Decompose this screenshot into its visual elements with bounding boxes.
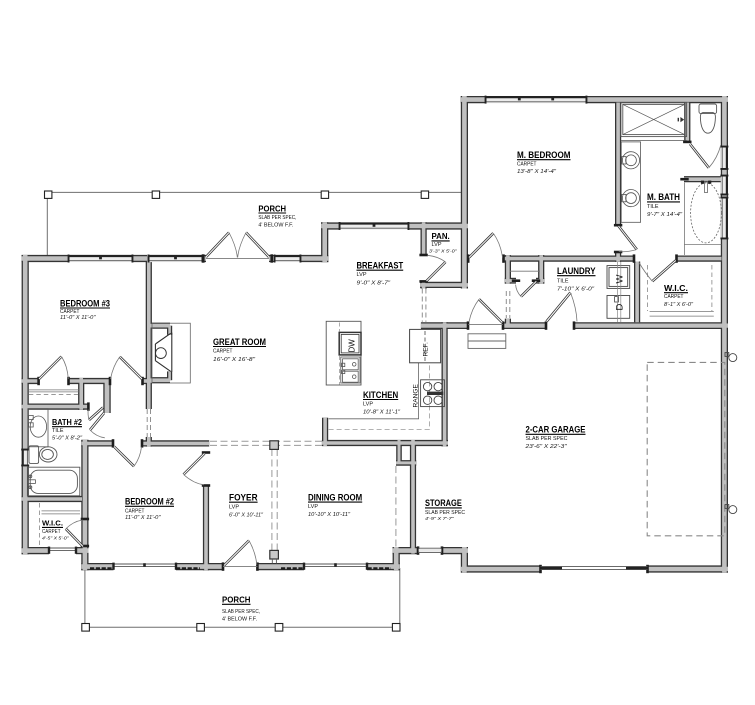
svg-text:LVP: LVP	[363, 402, 373, 408]
svg-text:M. BATH: M. BATH	[647, 192, 680, 202]
svg-text:STORAGE: STORAGE	[425, 498, 462, 508]
svg-text:FOYER: FOYER	[229, 493, 258, 503]
svg-text:M. BEDROOM: M. BEDROOM	[517, 150, 571, 160]
svg-text:TILE: TILE	[557, 279, 569, 285]
svg-text:CARPET: CARPET	[42, 529, 61, 535]
svg-text:BEDROOM #3: BEDROOM #3	[60, 298, 110, 308]
svg-text:TILE: TILE	[52, 428, 64, 434]
svg-text:4'-9" X 7'-7": 4'-9" X 7'-7"	[425, 516, 454, 522]
svg-text:DINING ROOM: DINING ROOM	[308, 492, 362, 502]
svg-text:SLAB PER SPEC,: SLAB PER SPEC,	[222, 609, 260, 615]
svg-text:PORCH: PORCH	[222, 596, 251, 605]
svg-text:PORCH: PORCH	[258, 204, 286, 213]
svg-text:23'-6" X 22'-3": 23'-6" X 22'-3"	[524, 444, 568, 450]
svg-text:SLAB PER SPEC,: SLAB PER SPEC,	[258, 215, 296, 221]
svg-text:CARPET: CARPET	[213, 349, 233, 355]
svg-text:4' BELOW F.F.: 4' BELOW F.F.	[258, 222, 293, 228]
svg-text:LVP: LVP	[229, 505, 239, 511]
svg-text:BREAKFAST: BREAKFAST	[357, 261, 404, 271]
svg-text:CARPET: CARPET	[664, 294, 684, 300]
svg-text:SLAB PER SPEC: SLAB PER SPEC	[425, 510, 465, 516]
svg-text:16'-0" X 16'-8": 16'-0" X 16'-8"	[213, 357, 256, 363]
svg-text:CARPET: CARPET	[125, 508, 145, 514]
svg-text:7'-10" X 6'-0": 7'-10" X 6'-0"	[557, 287, 595, 293]
svg-text:4'-5" X 5'-0": 4'-5" X 5'-0"	[42, 536, 69, 542]
svg-text:DW: DW	[348, 339, 357, 353]
svg-text:4' BELOW F.F.: 4' BELOW F.F.	[222, 617, 257, 623]
svg-text:W.I.C.: W.I.C.	[42, 519, 63, 528]
svg-text:LVP: LVP	[308, 504, 318, 510]
svg-text:D: D	[615, 304, 626, 311]
svg-text:13'-8" X 14'-4": 13'-8" X 14'-4"	[517, 169, 557, 175]
svg-text:5'-0" X 8'-2": 5'-0" X 8'-2"	[52, 436, 82, 442]
svg-text:LVP: LVP	[432, 242, 442, 248]
svg-text:2-CAR GARAGE: 2-CAR GARAGE	[526, 425, 586, 435]
svg-text:REF.: REF.	[423, 342, 430, 356]
svg-text:W.I.C.: W.I.C.	[664, 283, 688, 293]
svg-text:CARPET: CARPET	[517, 162, 537, 168]
svg-text:10'-8" X 11'-1": 10'-8" X 11'-1"	[363, 409, 401, 415]
svg-text:LAUNDRY: LAUNDRY	[557, 266, 596, 276]
svg-text:TILE: TILE	[647, 204, 659, 210]
svg-text:RANGE: RANGE	[413, 383, 420, 407]
svg-text:10'-10" X 10'-11": 10'-10" X 10'-11"	[308, 512, 351, 518]
svg-text:3'-3" X 5'-0": 3'-3" X 5'-0"	[429, 248, 457, 254]
svg-text:PAN.: PAN.	[432, 232, 450, 241]
svg-text:9'-0" X 8'-7": 9'-0" X 8'-7"	[357, 281, 392, 287]
svg-text:BEDROOM #2: BEDROOM #2	[125, 497, 174, 507]
svg-text:W: W	[615, 275, 626, 284]
svg-text:BATH #2: BATH #2	[52, 418, 82, 427]
svg-text:6'-0" X 10'-11": 6'-0" X 10'-11"	[229, 513, 264, 519]
svg-text:SLAB PER SPEC: SLAB PER SPEC	[526, 436, 568, 442]
svg-text:11'-0" X 11'-0": 11'-0" X 11'-0"	[125, 515, 162, 521]
svg-text:GREAT ROOM: GREAT ROOM	[213, 337, 266, 347]
svg-text:8'-1" X 6'-0": 8'-1" X 6'-0"	[664, 302, 694, 308]
svg-text:KITCHEN: KITCHEN	[363, 390, 398, 400]
svg-text:LVP: LVP	[357, 272, 367, 278]
svg-text:11'-0" X 11'-0": 11'-0" X 11'-0"	[60, 315, 97, 321]
svg-text:9'-7" X 14'-4": 9'-7" X 14'-4"	[647, 212, 683, 218]
